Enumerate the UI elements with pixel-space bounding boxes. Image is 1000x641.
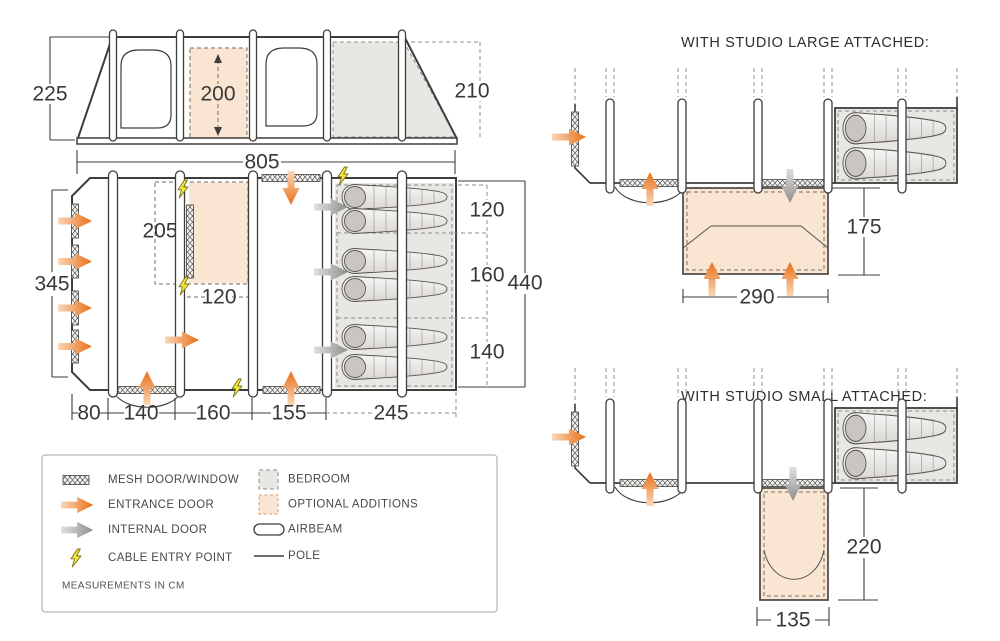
dim-label-bedroom-2: 160 — [469, 264, 504, 287]
dim-label-section-1: 80 — [77, 402, 100, 425]
dim-label-section-3: 160 — [195, 402, 230, 425]
airbeam-icon — [254, 524, 284, 535]
studio-small-view: WITH STUDIO SMALL ATTACHED: — [552, 368, 957, 632]
airbeam — [177, 30, 184, 141]
dim-label-section-2: 140 — [123, 402, 158, 425]
dim-label-inner-height: 200 — [200, 83, 235, 106]
airbeam — [399, 30, 406, 141]
legend-label: POLE — [288, 550, 320, 562]
airbeam — [110, 30, 117, 141]
legend-label: MESH DOOR/WINDOW — [108, 474, 239, 486]
airbeam — [606, 399, 614, 493]
airbeam — [754, 399, 762, 493]
dim-height-front: 225 — [32, 37, 110, 140]
studio-small-area — [760, 488, 828, 600]
entrance-door-icon — [642, 172, 659, 206]
window — [266, 48, 317, 126]
dim-label-total-depth: 440 — [507, 272, 542, 295]
side-elevation-view: 225 200 210 805 — [32, 30, 490, 174]
airbeam — [398, 171, 407, 397]
floor-plan-view: 345 205 120 — [34, 167, 545, 425]
dim-studio-small-width: 135 — [757, 607, 829, 632]
dim-studio-large-depth: 175 — [831, 188, 882, 275]
dim-label-studio-large-width: 290 — [739, 286, 774, 309]
airbeam — [898, 399, 906, 493]
mesh-door-window-icon — [63, 476, 89, 485]
dim-label-section-4: 155 — [271, 402, 306, 425]
dim-studio-large-width: 290 — [683, 286, 828, 309]
dim-label-height-front: 225 — [32, 83, 67, 106]
airbeam — [606, 99, 614, 193]
airbeam — [249, 171, 258, 397]
dim-label-utility-width: 120 — [201, 286, 236, 309]
airbeam — [898, 99, 906, 193]
airbeam — [678, 99, 686, 193]
dim-label-utility-depth: 205 — [142, 220, 177, 243]
dim-height-rear: 210 — [454, 80, 490, 103]
legend-label: CABLE ENTRY POINT — [108, 552, 233, 564]
dim-length: 805 — [77, 150, 455, 174]
legend-label: AIRBEAM — [288, 524, 343, 536]
dim-label-section-5: 245 — [373, 402, 408, 425]
airbeam — [678, 399, 686, 493]
dim-label-studio-small-depth: 220 — [846, 536, 881, 559]
airbeam — [324, 30, 331, 141]
airbeam — [250, 30, 257, 141]
entrance-door-icon — [552, 129, 586, 146]
legend: MESH DOOR/WINDOW ENTRANCE DOOR INTERNAL … — [42, 455, 497, 612]
legend-label: INTERNAL DOOR — [108, 524, 207, 536]
entrance-door-icon — [642, 472, 659, 506]
front-slope — [78, 38, 112, 138]
legend-label: ENTRANCE DOOR — [108, 499, 214, 511]
studio-small-title: WITH STUDIO SMALL ATTACHED: — [681, 389, 927, 405]
dim-label-height-rear: 210 — [454, 80, 489, 103]
rear-canopy-area — [333, 42, 456, 137]
dim-label-front-width: 345 — [34, 273, 69, 296]
airbeam — [824, 399, 832, 493]
entrance-door-icon — [552, 429, 586, 446]
tent-floorplan-diagram: 225 200 210 805 — [0, 0, 1000, 641]
dim-label-length: 805 — [244, 151, 279, 174]
airbeam — [754, 99, 762, 193]
dim-label-bedroom-3: 140 — [469, 341, 504, 364]
optional-addition-area — [189, 183, 248, 284]
legend-label: BEDROOM — [288, 474, 350, 486]
airbeam — [109, 171, 118, 397]
legend-note: MEASUREMENTS IN CM — [62, 581, 185, 592]
optional-additions-icon — [259, 495, 278, 514]
dim-bedrooms: 120 160 140 440 — [454, 181, 545, 387]
window — [121, 50, 171, 128]
dim-sections: 80 140 160 155 245 — [72, 392, 456, 425]
dim-studio-small-depth: 220 — [838, 488, 882, 600]
legend-label: OPTIONAL ADDITIONS — [288, 499, 418, 511]
airbeam — [824, 99, 832, 193]
mesh-door-window — [187, 205, 194, 278]
dim-label-studio-large-depth: 175 — [846, 216, 881, 239]
bedroom-icon — [259, 470, 278, 489]
dim-label-bedroom-1: 120 — [469, 199, 504, 222]
studio-large-view: WITH STUDIO LARGE ATTACHED: — [552, 35, 957, 309]
dim-label-studio-small-width: 135 — [775, 609, 810, 632]
studio-large-title: WITH STUDIO LARGE ATTACHED: — [681, 35, 929, 51]
